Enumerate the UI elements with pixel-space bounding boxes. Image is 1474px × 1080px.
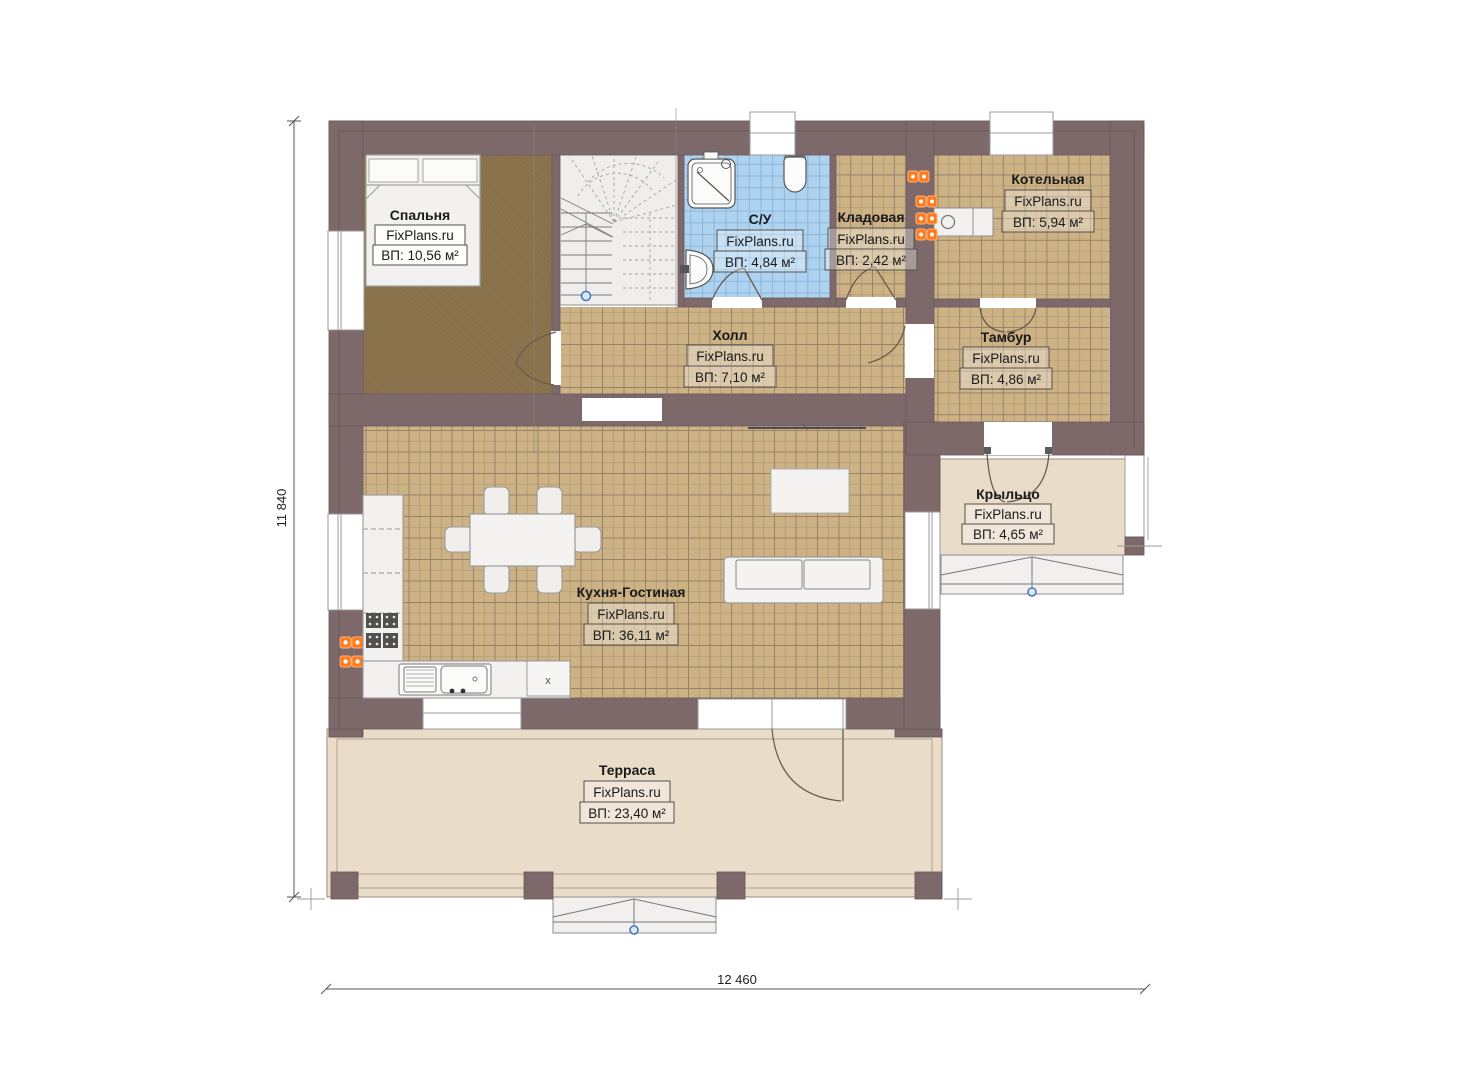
svg-text:ВП: 5,94 м²: ВП: 5,94 м² [1013,215,1084,230]
svg-text:ВП: 4,65 м²: ВП: 4,65 м² [973,527,1044,542]
svg-text:x: x [545,675,551,687]
svg-text:ВП: 4,84 м²: ВП: 4,84 м² [725,255,796,270]
svg-text:FixPlans.ru: FixPlans.ru [837,232,905,247]
svg-text:ВП: 36,11 м²: ВП: 36,11 м² [593,628,670,643]
svg-text:С/У: С/У [749,211,772,227]
svg-text:ВП: 23,40 м²: ВП: 23,40 м² [588,806,666,821]
svg-text:ВП: 10,56 м²: ВП: 10,56 м² [381,248,459,263]
svg-text:ВП: 7,10 м²: ВП: 7,10 м² [695,370,766,385]
svg-text:FixPlans.ru: FixPlans.ru [386,228,454,243]
svg-text:11 840: 11 840 [274,489,289,528]
svg-text:12 460: 12 460 [717,972,757,987]
svg-text:FixPlans.ru: FixPlans.ru [597,607,665,622]
svg-text:Тамбур: Тамбур [981,329,1032,345]
svg-text:Терраса: Терраса [599,762,655,778]
svg-text:FixPlans.ru: FixPlans.ru [974,507,1042,522]
svg-text:Спальня: Спальня [390,207,450,223]
svg-text:FixPlans.ru: FixPlans.ru [726,234,794,249]
svg-text:ВП: 4,86 м²: ВП: 4,86 м² [971,372,1042,387]
svg-text:FixPlans.ru: FixPlans.ru [593,785,661,800]
svg-text:Холл: Холл [712,327,747,343]
svg-text:Кухня-Гостиная: Кухня-Гостиная [577,584,686,600]
svg-text:FixPlans.ru: FixPlans.ru [972,351,1040,366]
svg-text:FixPlans.ru: FixPlans.ru [696,349,764,364]
svg-text:Кладовая: Кладовая [837,209,904,225]
svg-text:Котельная: Котельная [1011,171,1084,187]
svg-text:ВП: 2,42 м²: ВП: 2,42 м² [836,253,907,268]
svg-text:FixPlans.ru: FixPlans.ru [1014,194,1082,209]
svg-text:Крыльцо: Крыльцо [976,486,1040,502]
